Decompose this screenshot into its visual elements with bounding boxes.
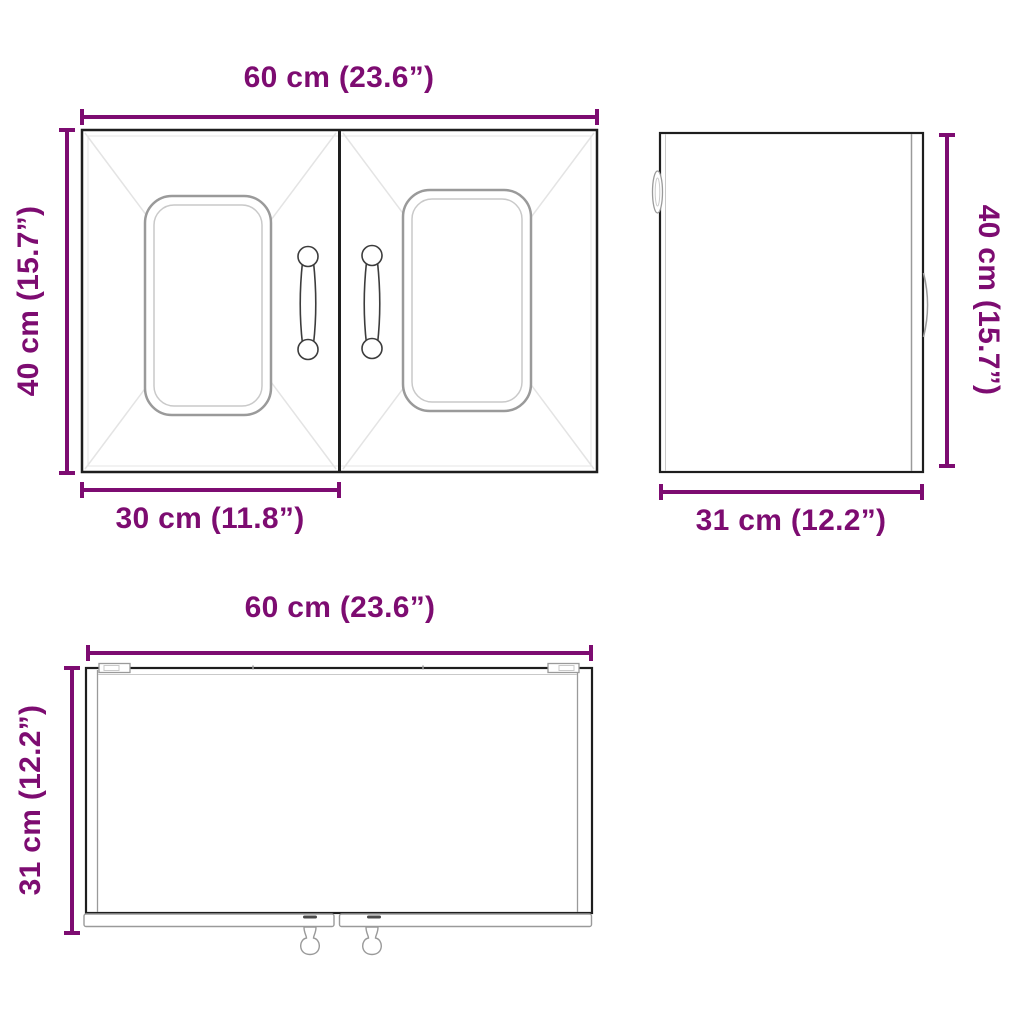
top-width-dimension-line xyxy=(88,645,591,661)
front-height-label: 40 cm (15.7”) xyxy=(12,206,46,397)
front-view xyxy=(59,109,597,498)
side-view xyxy=(653,133,956,500)
top-depth-dimension-line xyxy=(64,668,80,933)
top-depth-label: 31 cm (12.2”) xyxy=(14,705,48,896)
front-width-label: 60 cm (23.6”) xyxy=(244,61,435,95)
right-door-handle-icon xyxy=(362,246,382,359)
top-left-handle-icon xyxy=(301,927,320,955)
right-hinge-plate-icon xyxy=(548,664,579,673)
side-handle-profile-icon xyxy=(924,273,928,337)
front-door-width-label: 30 cm (11.8”) xyxy=(115,502,304,536)
top-door-fronts xyxy=(84,914,592,927)
side-height-label: 40 cm (15.7”) xyxy=(971,205,1005,396)
side-depth-dimension-line xyxy=(661,484,922,500)
top-right-handle-icon xyxy=(363,927,382,955)
left-door-glass-panel xyxy=(145,196,271,415)
front-door-width-dimension-line xyxy=(82,482,339,498)
top-width-label: 60 cm (23.6”) xyxy=(245,591,436,625)
side-depth-label: 31 cm (12.2”) xyxy=(696,504,887,538)
cabinet-dimension-diagram: 60 cm (23.6”) 40 cm (15.7”) 30 cm (11.8”… xyxy=(0,0,1024,1024)
side-hinge-icon xyxy=(653,171,663,213)
top-view xyxy=(64,645,592,955)
side-height-dimension-line xyxy=(939,135,955,466)
front-height-dimension-line xyxy=(59,130,75,473)
right-door-glass-panel xyxy=(403,190,531,411)
front-width-dimension-line xyxy=(82,109,597,125)
left-hinge-plate-icon xyxy=(99,664,130,673)
left-door-handle-icon xyxy=(298,247,318,360)
